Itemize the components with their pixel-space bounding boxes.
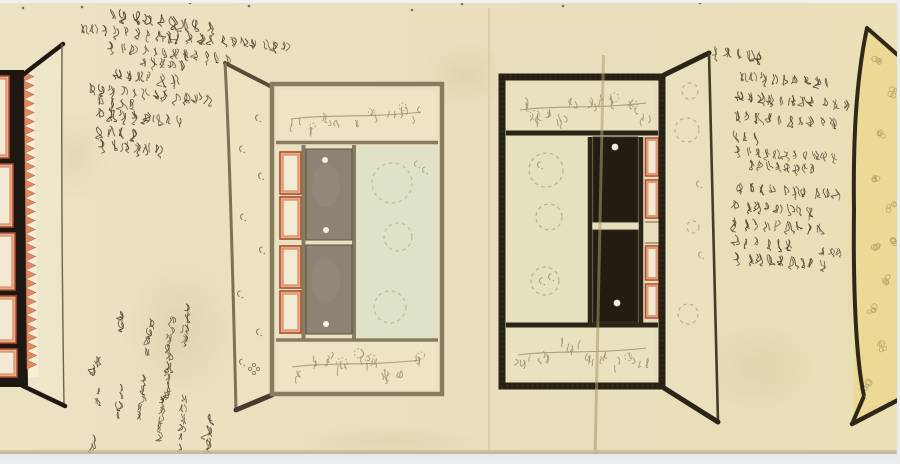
annotation-column-bottom-left: 金物斗踏 bbox=[143, 318, 155, 356]
annotation-column-bottom-left: 袖冬毛田 bbox=[114, 384, 126, 419]
annotation-line-top-left: 建物見御車両御名十 bbox=[109, 8, 215, 36]
annotation-line-right: 引キ手黒田塗改まみと bbox=[736, 182, 840, 202]
annotation-line-right: 雲仲水与求く bbox=[731, 235, 792, 253]
annotation-line-right: 納代白洲ヘ入氏連携 bbox=[740, 71, 828, 91]
annotation-column-bottom-left: 散物 bbox=[115, 311, 126, 333]
annotation-line-top-left: 物見三枚黒塗 bbox=[112, 69, 180, 89]
annotation-column-bottom-left: 編氏 bbox=[94, 387, 103, 405]
annotation-line-top-left: 中静樓事静 bbox=[140, 57, 185, 73]
annotation-line-right: 御簾庫玉採繰説既祭極蓮 bbox=[734, 145, 837, 165]
annotation-line-right: 御操ミ川氏祥い有色 bbox=[734, 252, 826, 271]
annotation-column-bottom-left: 上白御車 bbox=[199, 414, 214, 462]
annotation-column-bottom-left: 御投案ニ編 bbox=[155, 397, 166, 442]
annotation-line-right: 仁操田寺既祥田地絵 bbox=[730, 217, 824, 238]
annotation-column-bottom-left: 手傷 bbox=[87, 355, 103, 377]
annotation-column-bottom-left: 網代二三白袖 bbox=[175, 395, 189, 452]
annotation-line-right: 立枚柳見又甲氈縁も氏 bbox=[734, 111, 837, 131]
annotation-column-bottom-left: 袖ニ悦 bbox=[85, 435, 100, 463]
cursive-annotations-layer: 建物見御車両御名十納代ゆ比地様上朱ニ而村砥又袖こち例ヲ知ル御簾縁取りゆ入樓へ地り… bbox=[0, 0, 900, 464]
annotation-line-right: 下操ミ直四つ書傷 bbox=[731, 200, 813, 220]
annotation-line-right: 経鉾同 bbox=[733, 131, 759, 145]
annotation-column-bottom-left: 樓室白字 bbox=[164, 316, 176, 354]
annotation-line-top-left: 下裏白ミ縅毯自然 bbox=[96, 108, 182, 130]
annotation-column-bottom-left: 下裏白緞縅 bbox=[160, 352, 175, 401]
annotation-line-right: 公卿様居十 bbox=[712, 46, 762, 65]
annotation-line-right: 連枝な電煙ミ近る bbox=[749, 160, 814, 177]
annotation-line-top-left: 所々手傷 bbox=[96, 125, 137, 142]
annotation-line-top-left: 不打付ニ bbox=[98, 97, 134, 113]
scroll-scan-page: 建物見御車両御名十納代ゆ比地様上朱ニ而村砥又袖こち例ヲ知ル御簾縁取りゆ入樓へ地り… bbox=[0, 0, 900, 464]
annotation-line-top-left: 金物白ありと悦見堂段倉成 bbox=[89, 83, 213, 108]
annotation-line-top-left: 御簾縁取りゆ入樓へ地り茸 bbox=[107, 41, 231, 68]
annotation-line-top-left: 御棚金物条々 bbox=[98, 139, 163, 159]
annotation-column-bottom-left: 御棚金物 bbox=[179, 304, 192, 347]
annotation-column-bottom-left: 御官成ニ白 bbox=[136, 375, 150, 420]
annotation-tiny: 小サミ bbox=[818, 247, 841, 257]
annotation-line-right: 物見前者又白飛え滴り知 bbox=[735, 91, 850, 112]
